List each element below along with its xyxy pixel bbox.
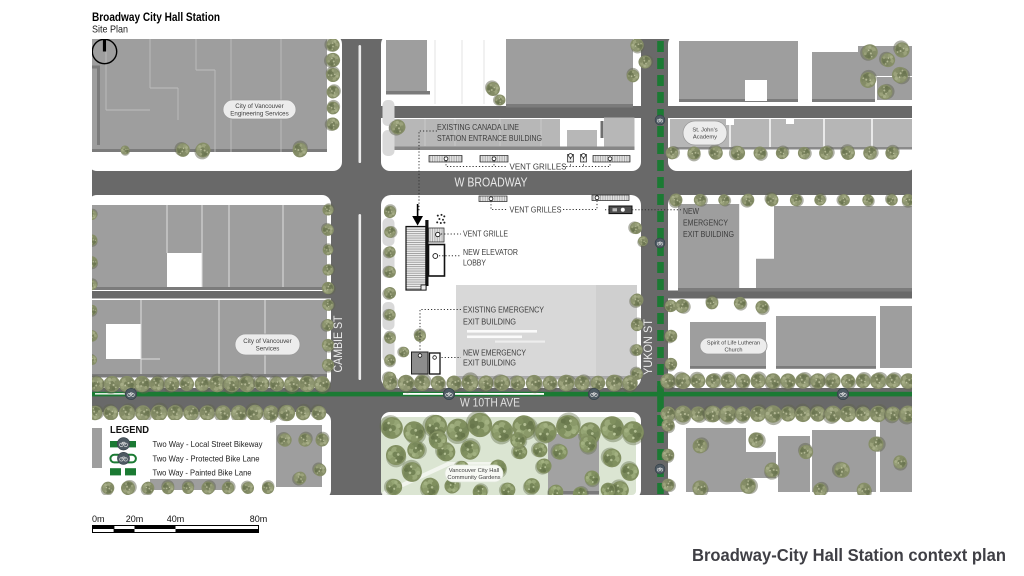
svg-text:Community Gardens: Community Gardens [447, 475, 500, 481]
svg-text:EMERGENCY: EMERGENCY [683, 219, 729, 228]
svg-text:Site Plan: Site Plan [92, 24, 128, 36]
svg-text:Services: Services [256, 346, 280, 353]
svg-text:CAMBIE ST: CAMBIE ST [331, 315, 345, 373]
svg-text:NEW ELEVATOR: NEW ELEVATOR [463, 248, 518, 257]
svg-text:YUKON ST: YUKON ST [641, 318, 655, 375]
svg-text:St. John's: St. John's [692, 127, 717, 133]
svg-text:Academy: Academy [693, 135, 717, 141]
svg-text:Two Way - Local Street Bikeway: Two Way - Local Street Bikeway [153, 439, 264, 449]
svg-text:City of Vancouver: City of Vancouver [243, 338, 291, 345]
svg-text:Broadway-City Hall Station con: Broadway-City Hall Station context plan [692, 545, 1006, 565]
svg-text:W 10TH AVE: W 10TH AVE [460, 397, 520, 409]
svg-text:Spirit of Life Lutheran: Spirit of Life Lutheran [707, 340, 760, 346]
svg-text:EXISTING EMERGENCY: EXISTING EMERGENCY [463, 306, 545, 315]
svg-text:Broadway City Hall Station: Broadway City Hall Station [92, 10, 220, 24]
svg-text:VENT GRILLES: VENT GRILLES [510, 206, 562, 215]
svg-text:LEGEND: LEGEND [110, 424, 149, 436]
svg-text:STATION ENTRANCE BUILDING: STATION ENTRANCE BUILDING [437, 134, 542, 143]
svg-text:Two Way - Protected Bike Lane: Two Way - Protected Bike Lane [153, 454, 260, 464]
svg-text:20m: 20m [126, 514, 144, 524]
svg-text:EXISTING CANADA LINE: EXISTING CANADA LINE [437, 123, 519, 132]
svg-text:EXIT BUILDING: EXIT BUILDING [463, 318, 516, 327]
svg-text:NEW: NEW [683, 207, 699, 216]
svg-text:Vancouver City Hall: Vancouver City Hall [449, 468, 499, 474]
svg-text:Church: Church [724, 348, 742, 354]
svg-text:Engineering Services: Engineering Services [230, 111, 288, 118]
svg-text:VENT GRILLES: VENT GRILLES [510, 163, 567, 172]
svg-text:EXIT BUILDING: EXIT BUILDING [683, 230, 734, 239]
svg-text:80m: 80m [250, 514, 268, 524]
svg-text:LOBBY: LOBBY [463, 259, 487, 268]
svg-text:VENT GRILLE: VENT GRILLE [463, 230, 508, 239]
svg-text:EXIT BUILDING: EXIT BUILDING [463, 359, 516, 368]
svg-text:40m: 40m [167, 514, 185, 524]
svg-text:City of Vancouver: City of Vancouver [235, 103, 283, 110]
svg-text:0m: 0m [92, 514, 105, 524]
svg-text:Two Way - Painted Bike Lane: Two Way - Painted Bike Lane [153, 467, 252, 477]
svg-text:W BROADWAY: W BROADWAY [455, 176, 529, 190]
svg-text:NEW EMERGENCY: NEW EMERGENCY [463, 349, 527, 358]
